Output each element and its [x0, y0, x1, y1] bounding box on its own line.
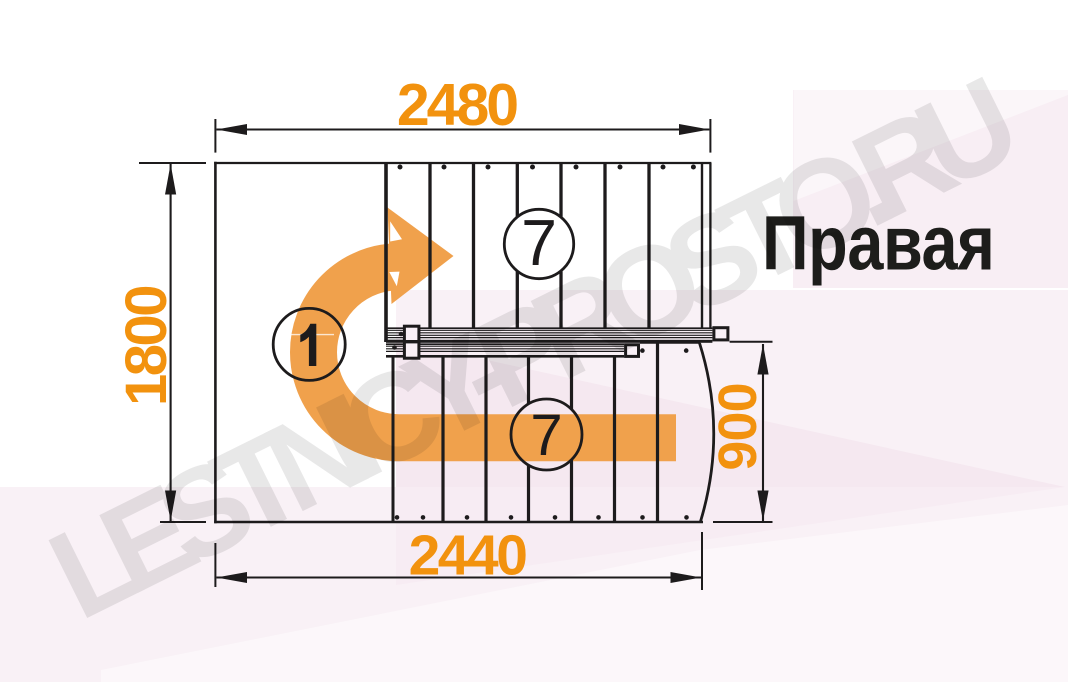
svg-text:1800: 1800	[114, 287, 179, 406]
svg-text:900: 900	[708, 383, 768, 470]
svg-text:2440: 2440	[409, 524, 527, 588]
svg-text:2480: 2480	[397, 72, 517, 138]
